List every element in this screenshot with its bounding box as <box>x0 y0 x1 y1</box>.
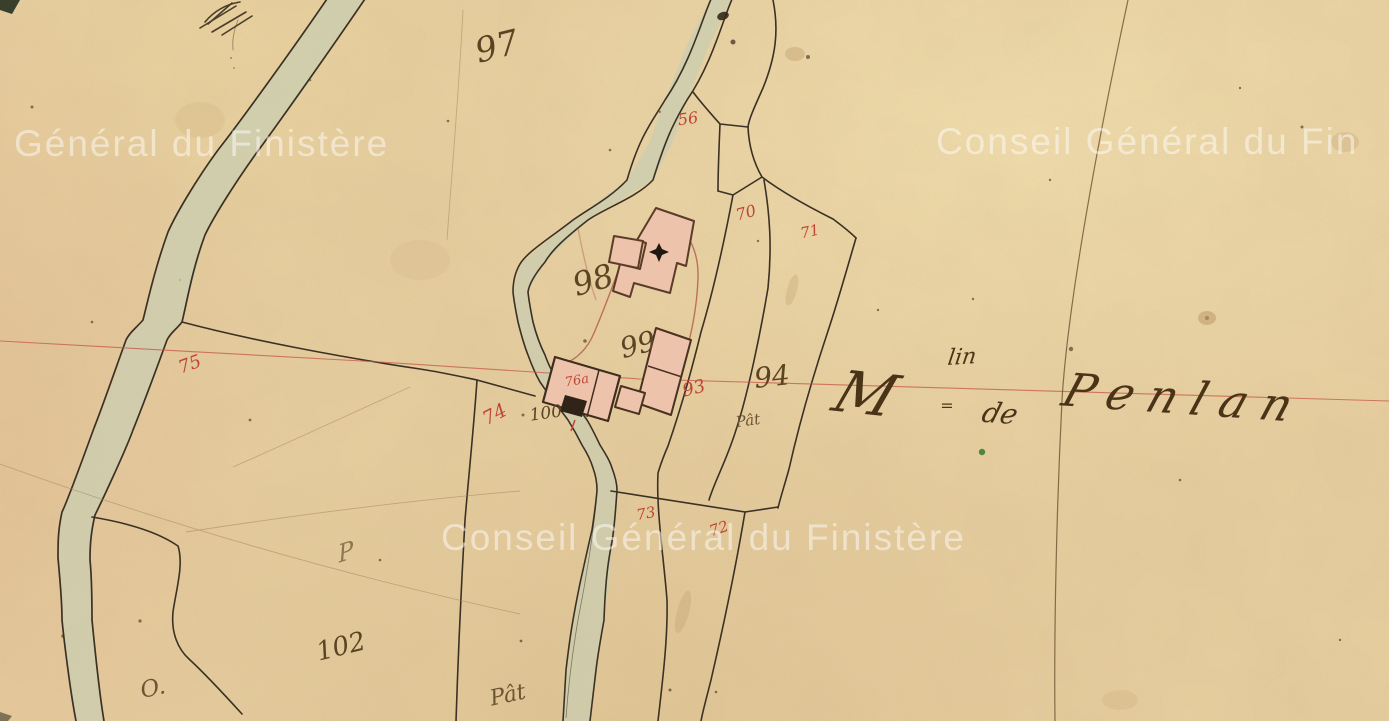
watermark-right: Conseil Général du Fin <box>936 121 1358 163</box>
parcel-label-100: 100 <box>529 403 564 424</box>
parcel-label-97: 97 <box>472 25 522 68</box>
note-o-mark: O. <box>138 675 167 703</box>
watermark-center: Conseil Général du Finistère <box>441 517 966 559</box>
red-label-76a: 76a <box>564 372 590 389</box>
watermark-left: Général du Finistère <box>14 123 389 165</box>
toponym-abbrev-lin: lin <box>946 346 977 370</box>
map-canvas: 97 98 99 100 102 94 75 74 76a 56 70 71 9… <box>0 0 1389 721</box>
red-label-71: 71 <box>799 223 821 242</box>
parcel-label-98: 98 <box>569 259 617 301</box>
note-p-flourish: P <box>337 537 355 566</box>
building-main-annex <box>609 236 643 268</box>
note-pat-parcel94: Pât <box>735 412 761 430</box>
road-ink-dot <box>731 40 736 45</box>
red-label-56: 56 <box>677 110 699 129</box>
parcel-label-94: 94 <box>753 361 791 393</box>
toponym-abbrev-eq: = <box>940 398 953 414</box>
green-ink-dot <box>979 449 985 455</box>
